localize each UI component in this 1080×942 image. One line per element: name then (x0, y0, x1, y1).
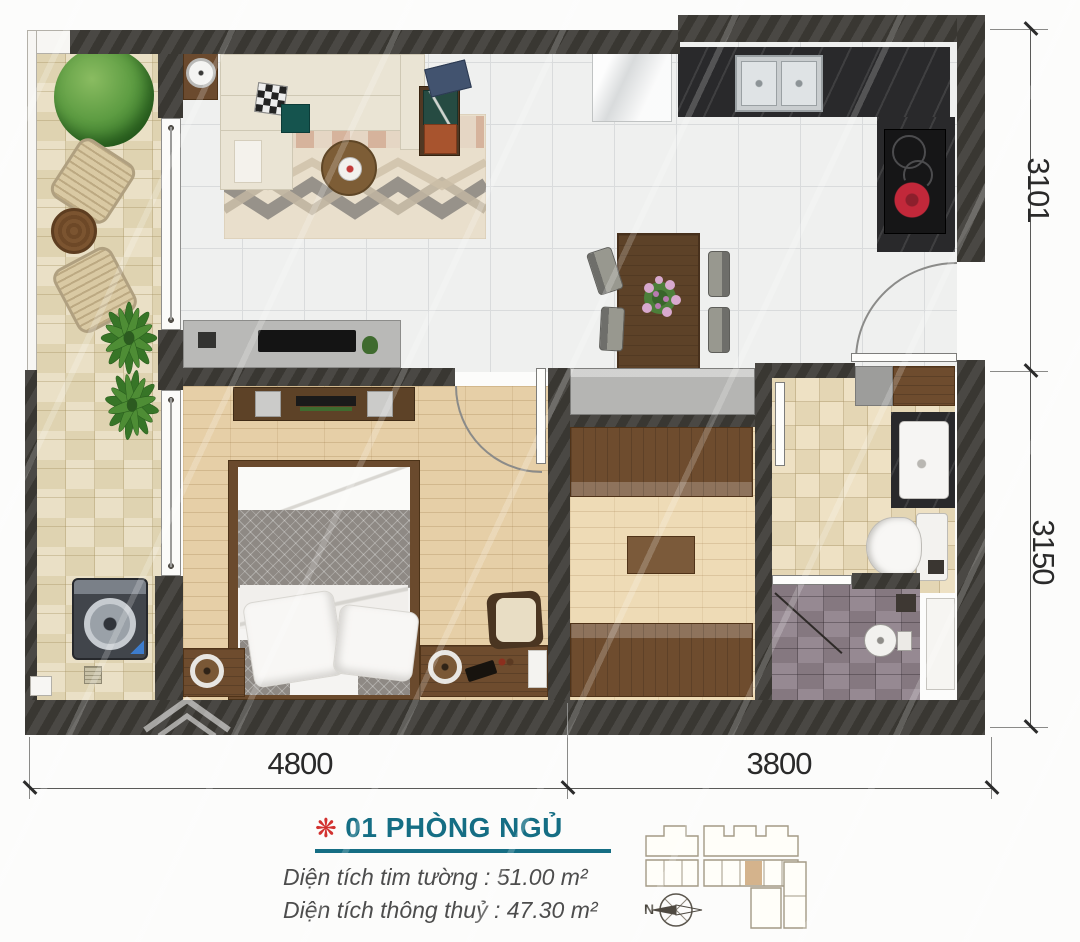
shower-head (864, 624, 897, 657)
tissue-box (928, 560, 944, 574)
extension-line (990, 727, 1048, 728)
tv-bedroom (296, 396, 356, 406)
balcony-corner-notch (30, 676, 52, 696)
dining-chair (708, 251, 730, 297)
flower-centerpiece (634, 272, 686, 324)
toilet-bowl (866, 517, 922, 577)
decor-plate (190, 654, 224, 688)
console-plant (362, 336, 378, 354)
corridor-bathroom-wall (755, 363, 772, 700)
entry-mat (855, 366, 893, 406)
balcony-rail (27, 30, 37, 375)
palm-plant (102, 366, 162, 444)
decor-plate (428, 650, 462, 684)
shower-caddy (896, 594, 916, 612)
building-key-plan (638, 806, 894, 942)
makeup-chair-seat (496, 598, 536, 642)
cosmetics (498, 656, 514, 668)
living-bedroom-wall (183, 368, 455, 386)
console-speaker (367, 391, 393, 417)
extension-line (990, 371, 1048, 372)
dining-chair (599, 306, 625, 351)
dimension-label-3150: 3150 (1025, 492, 1061, 612)
notepad (528, 650, 547, 688)
dimension-label-4800: 4800 (240, 746, 360, 782)
console-plant-strip (300, 407, 352, 411)
bed-blanket (238, 510, 410, 588)
storage-bench (627, 536, 695, 574)
sink-bowl (781, 61, 817, 106)
console-speaker (255, 391, 281, 417)
shower-bracket (897, 631, 912, 651)
dining-chair (708, 307, 730, 353)
flower-icon: ❋ (315, 813, 337, 843)
coffee-table-tray (338, 157, 362, 181)
sofa-ottoman (234, 140, 262, 183)
tv-living (258, 330, 356, 352)
bed-pillow (332, 603, 420, 682)
north-label: N (644, 901, 654, 917)
orange-cushion (424, 124, 457, 154)
dimension-line-bottom (29, 788, 992, 789)
dimension-label-3800: 3800 (719, 746, 839, 782)
wall-right-upper (957, 15, 985, 262)
bathroom-sink (899, 421, 949, 499)
washing-machine-badge (130, 640, 144, 654)
watermark-logo (125, 688, 275, 743)
wall-clock (186, 58, 216, 88)
gray-cabinet (570, 368, 755, 415)
bedroom-door (536, 368, 546, 464)
floor-plan-page: 3101 3150 4800 3800 ❋01 PHÒNG NGỦ Diện t… (0, 0, 1080, 942)
shower-partition (772, 575, 852, 585)
unit-title-row: ❋01 PHÒNG NGỦ (283, 812, 653, 844)
highlighted-unit (745, 861, 762, 885)
balcony-sep-wall (158, 54, 183, 118)
wall-right-lower (957, 360, 985, 735)
compass-icon (650, 894, 702, 926)
dimension-label-3101: 3101 (1020, 130, 1056, 250)
wall-top-kitchen (678, 15, 985, 42)
area-line-net: Diện tích thông thuỷ : 47.30 m² (283, 894, 653, 927)
teal-side-table (281, 104, 310, 133)
area-line-gross: Diện tích tim tường : 51.00 m² (283, 861, 653, 894)
wall-left (25, 370, 37, 700)
unit-info-block: ❋01 PHÒNG NGỦ Diện tích tim tường : 51.0… (283, 812, 653, 927)
balcony-sep-wall (158, 330, 183, 390)
unit-title: 01 PHÒNG NGỦ (345, 812, 563, 843)
entrance-door (851, 353, 957, 362)
bathroom-sliding-door (775, 382, 785, 466)
bath-niche (926, 598, 955, 690)
sliding-door-bedroom-balcony (161, 390, 181, 576)
sliding-door-living-balcony (161, 118, 181, 330)
sofa-seat (220, 95, 402, 131)
bed-pillow (242, 589, 346, 688)
entry-cabinet (893, 366, 955, 406)
wall-top (70, 30, 680, 54)
console-speaker (198, 332, 216, 348)
cooktop-burner-hot (891, 179, 933, 221)
sofa-back (220, 54, 425, 96)
balcony-table (51, 208, 97, 254)
sink-bowl (741, 61, 777, 106)
title-underline (315, 849, 611, 853)
washing-machine-drum (84, 598, 136, 650)
bathroom-entry-wall (772, 363, 855, 378)
wardrobe-bottom (570, 623, 753, 697)
floor-drain (84, 666, 102, 684)
tree-plant (54, 47, 154, 147)
corridor-top-wall (570, 415, 755, 427)
wardrobe-top (570, 427, 753, 497)
refrigerator (592, 52, 672, 122)
extension-line (990, 29, 1048, 30)
balcony-sep-wall (155, 576, 183, 700)
bath-shower-wall (852, 573, 920, 589)
bedroom-corridor-wall (548, 368, 570, 700)
